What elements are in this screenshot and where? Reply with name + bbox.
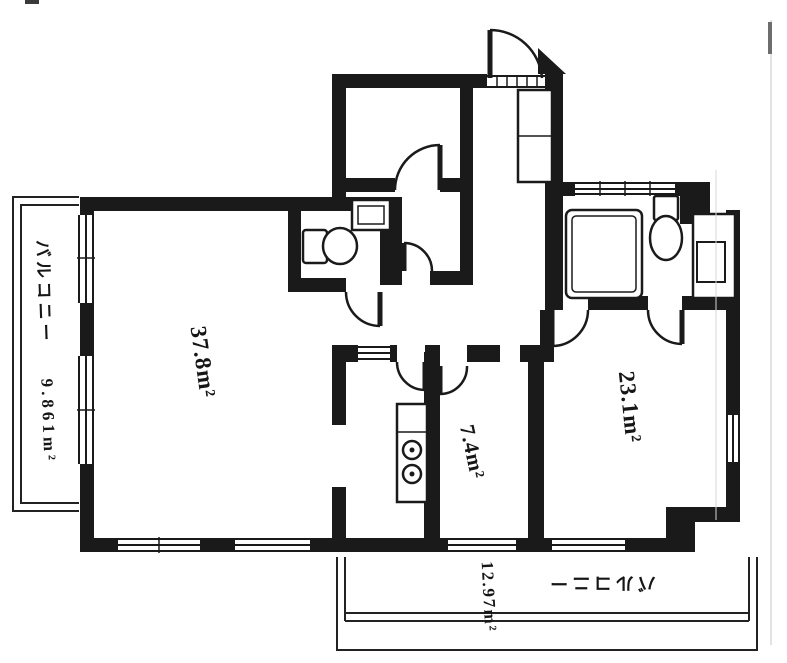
bath-basin-icon: [650, 196, 682, 260]
floor-plan: 37.8m² 23.1m² 7.4m² バルコニー9.861m² 12.97m²…: [0, 0, 787, 663]
toilet-shelf-icon: [352, 200, 390, 230]
door-arc: [648, 310, 682, 344]
kitchen-stove-icon: [397, 404, 427, 502]
window: [725, 415, 741, 462]
door-arc: [404, 243, 432, 271]
window: [77, 215, 95, 303]
balcony-bottom-name-label: バルコニー: [546, 574, 656, 592]
entrance-door-icon: [490, 30, 566, 78]
balcony-bottom-rail: [337, 557, 757, 650]
door-arc: [440, 366, 467, 394]
window: [358, 344, 390, 362]
floor-plan-drawing: [0, 0, 787, 663]
window: [235, 537, 310, 553]
window: [448, 537, 516, 553]
window: [575, 181, 675, 196]
window: [552, 537, 625, 553]
entry-closet-icon: [518, 90, 552, 182]
bathtub-icon: [566, 210, 642, 298]
door-arc: [395, 145, 440, 190]
window: [77, 356, 95, 464]
window: [118, 537, 200, 553]
balcony-bottom-area-label: 12.97m²: [479, 561, 500, 633]
door-arc: [346, 292, 380, 326]
vanity-icon: [693, 214, 735, 298]
entrance-threshold: [487, 73, 545, 89]
door-arc: [552, 310, 588, 346]
balcony-left-name: バルコニー: [33, 240, 56, 345]
door-arc: [397, 362, 425, 390]
toilet-icon: [303, 228, 357, 264]
balcony-left-area: 9.861m²: [37, 378, 59, 464]
